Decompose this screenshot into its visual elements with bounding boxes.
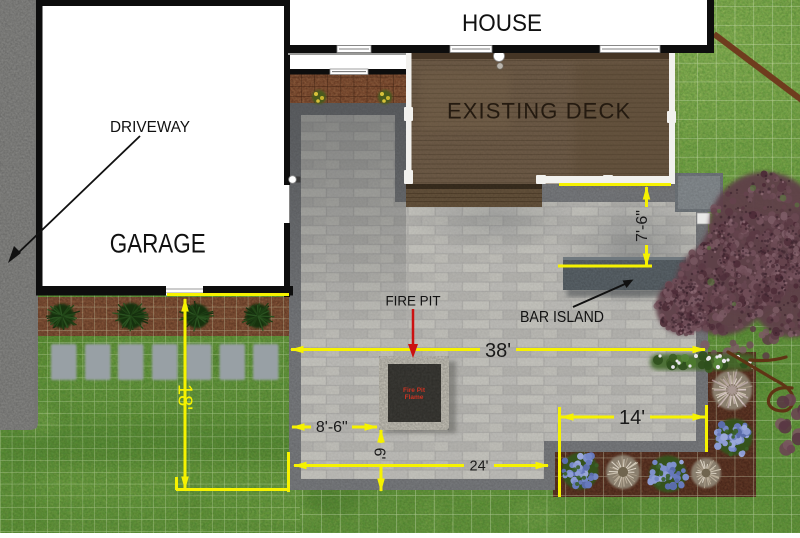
svg-text:14': 14' <box>619 407 645 429</box>
svg-text:18': 18' <box>174 384 196 410</box>
svg-text:DRIVEWAY: DRIVEWAY <box>110 119 190 136</box>
svg-text:Fire Pit: Fire Pit <box>403 387 426 394</box>
svg-text:EXISTING DECK: EXISTING DECK <box>447 99 631 124</box>
svg-text:38': 38' <box>485 340 511 362</box>
svg-text:FIRE PIT: FIRE PIT <box>386 294 441 309</box>
svg-text:7'-6": 7'-6" <box>634 210 651 242</box>
svg-text:BAR ISLAND: BAR ISLAND <box>520 309 604 326</box>
svg-text:GARAGE: GARAGE <box>110 229 206 259</box>
svg-text:HOUSE: HOUSE <box>462 10 542 37</box>
svg-text:8'-6": 8'-6" <box>316 419 348 436</box>
svg-text:6': 6' <box>370 448 387 460</box>
svg-text:Flame: Flame <box>405 394 424 401</box>
svg-text:24': 24' <box>470 459 489 475</box>
